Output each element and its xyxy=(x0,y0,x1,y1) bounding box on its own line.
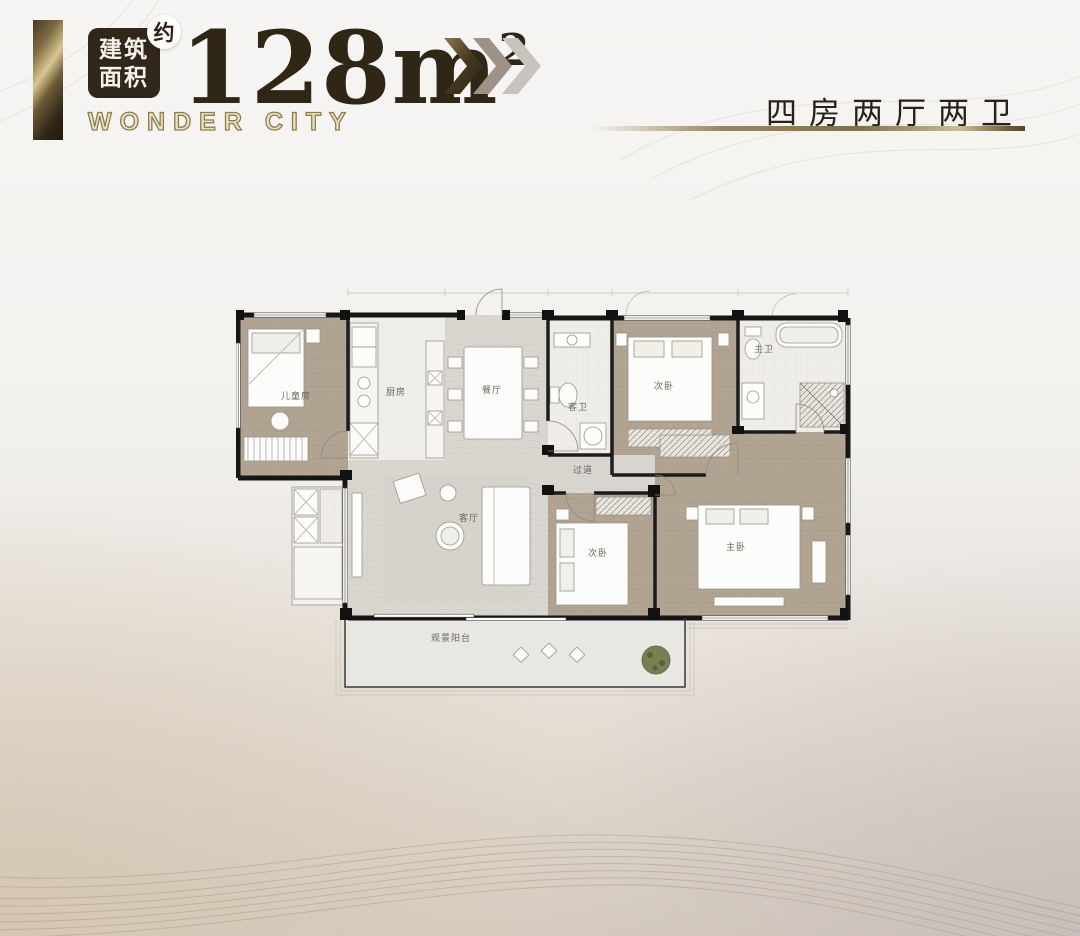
room-label-master-bath: 主卫 xyxy=(754,343,774,354)
gold-accent-bar xyxy=(33,20,63,140)
room-label-guest-bath: 客卫 xyxy=(568,401,588,412)
room-label-balcony: 观景阳台 xyxy=(431,632,471,643)
gold-divider-line xyxy=(592,126,1025,131)
approx-circle-badge: 约 xyxy=(147,15,181,49)
building-area-badge-line1: 建筑 xyxy=(99,35,149,63)
floor-plan: 儿童房 厨房 餐厅 客卫 次卧 主卫 过道 客厅 次卧 主卧 观景阳台 xyxy=(236,283,852,700)
room-label-bedroom-bottom: 次卧 xyxy=(588,547,608,558)
room-label-corridor: 过道 xyxy=(573,464,593,475)
room-label-dining: 餐厅 xyxy=(482,384,502,395)
building-area-badge-line2: 面积 xyxy=(99,63,149,91)
room-label-master-bedroom: 主卧 xyxy=(726,541,746,552)
room-label-kitchen: 厨房 xyxy=(386,386,406,397)
approx-label: 约 xyxy=(154,17,175,47)
room-label-living: 客厅 xyxy=(459,512,479,523)
brand-wordmark: WONDER CITY xyxy=(88,108,354,137)
chevron-arrows-icon xyxy=(444,38,562,96)
room-label-kids: 儿童房 xyxy=(281,390,311,401)
room-label-bedroom-top: 次卧 xyxy=(654,380,674,391)
